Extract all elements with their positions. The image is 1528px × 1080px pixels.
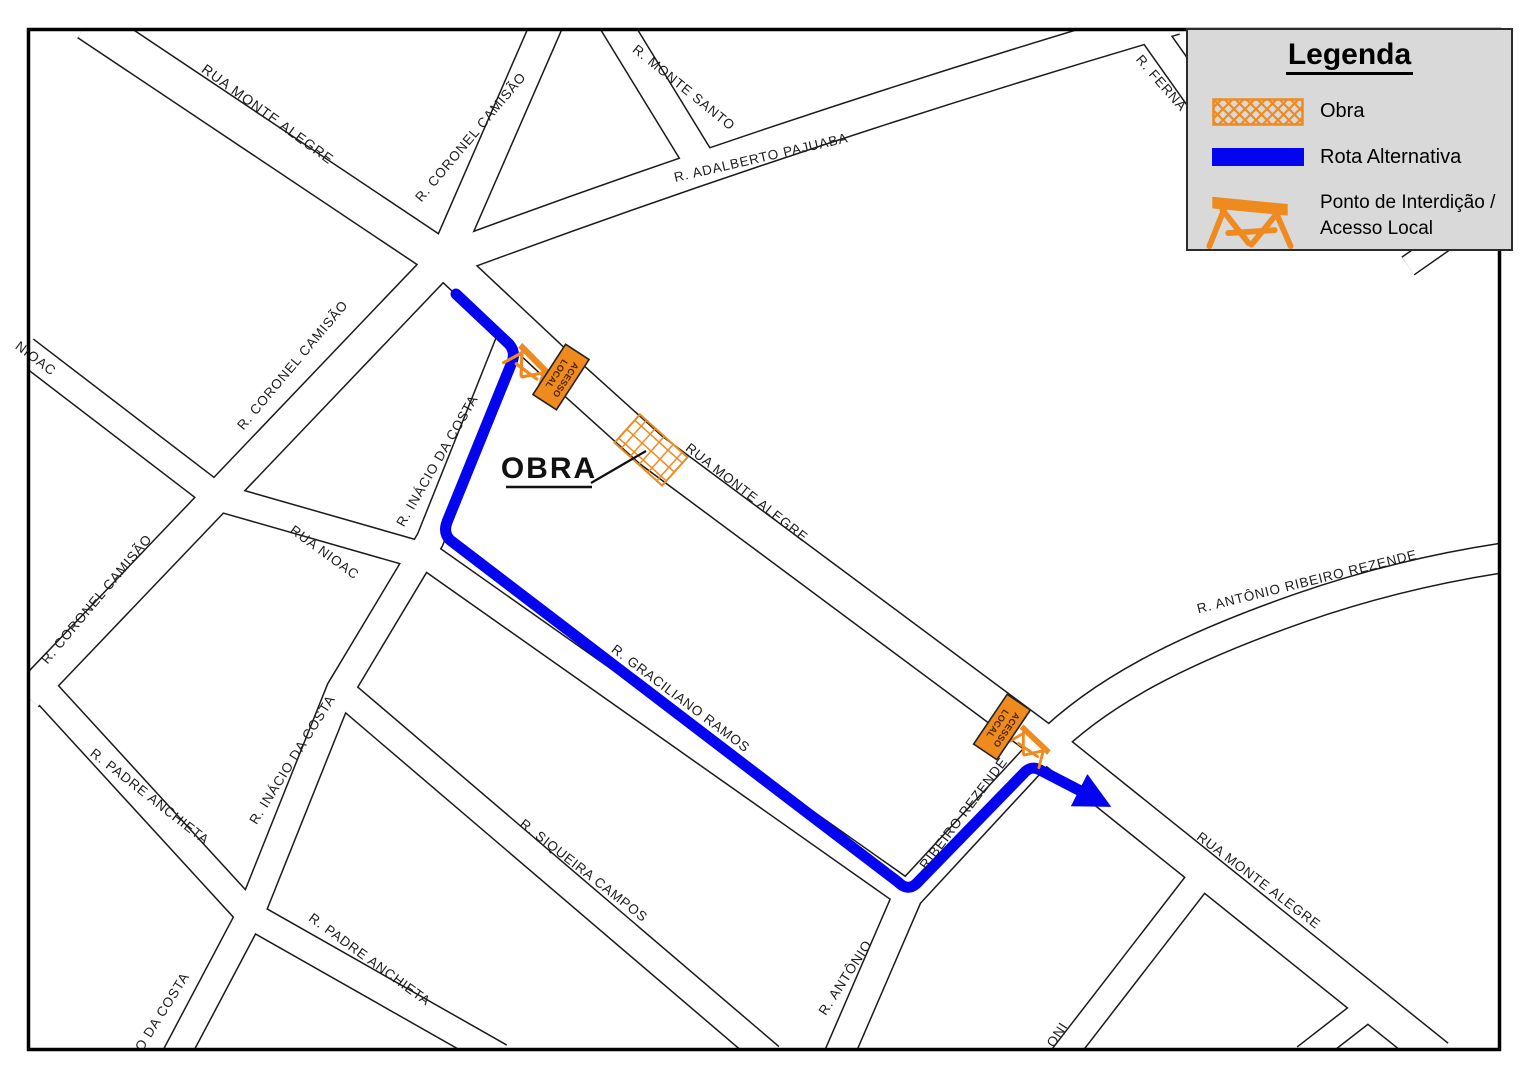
- legend-route-swatch: [1212, 148, 1304, 166]
- legend-title-wrap: Legenda: [1188, 38, 1511, 72]
- legend-barrier-icon: [1202, 186, 1298, 258]
- legend-interdiction-line2: Acesso Local: [1320, 216, 1495, 242]
- legend-route-label: Rota Alternativa: [1320, 146, 1461, 169]
- obra-label: OBRA: [501, 452, 597, 485]
- legend-interdiction-label: Ponto de Interdição / Acesso Local: [1320, 190, 1495, 241]
- legend-interdiction-line1: Ponto de Interdição /: [1320, 190, 1495, 216]
- legend-panel: Legenda Obra Rota Alternativa Ponto de I…: [1186, 28, 1513, 251]
- legend-title: Legenda: [1286, 38, 1413, 75]
- legend-obra-swatch: [1212, 98, 1304, 126]
- legend-obra-label: Obra: [1320, 100, 1364, 123]
- detour-map-canvas: OBRA ACESSO LOCAL ACESSO LOCAL RUA MONTE…: [0, 0, 1528, 1080]
